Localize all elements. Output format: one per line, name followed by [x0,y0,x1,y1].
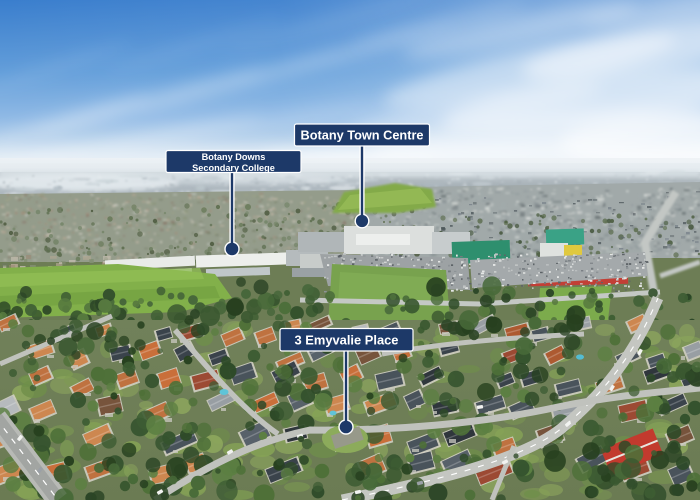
svg-text:Botany Downs: Botany Downs [202,152,266,162]
svg-text:Botany Town Centre: Botany Town Centre [300,128,423,143]
svg-text:3 Emyvalie Place: 3 Emyvalie Place [295,332,399,347]
svg-text:Secondary College: Secondary College [192,163,275,173]
